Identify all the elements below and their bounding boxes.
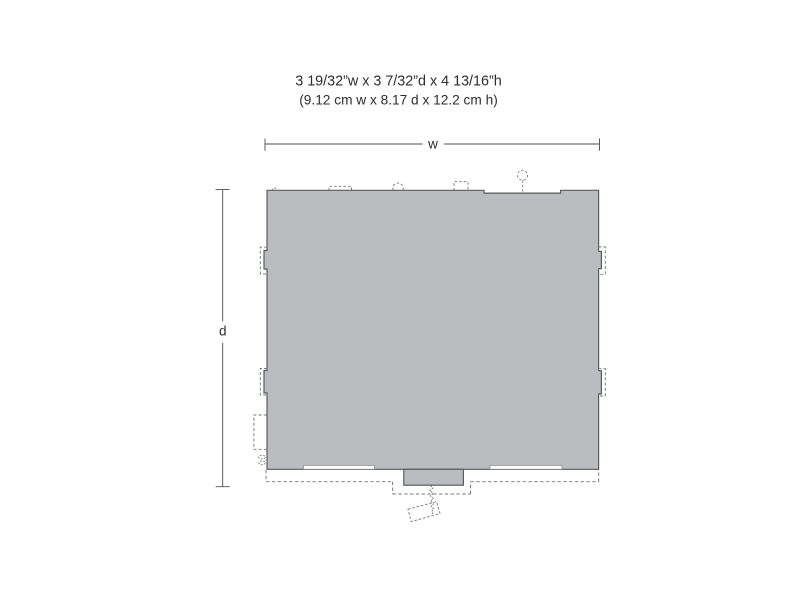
svg-text:d: d <box>219 323 227 338</box>
svg-text:(9.12 cm w x 8.17 d x 12.2 cm: (9.12 cm w x 8.17 d x 12.2 cm h) <box>299 92 498 107</box>
svg-text:3 19/32”w x 3 7/32”d x 4 13/16: 3 19/32”w x 3 7/32”d x 4 13/16”h <box>295 74 502 90</box>
svg-text:w: w <box>427 136 438 151</box>
